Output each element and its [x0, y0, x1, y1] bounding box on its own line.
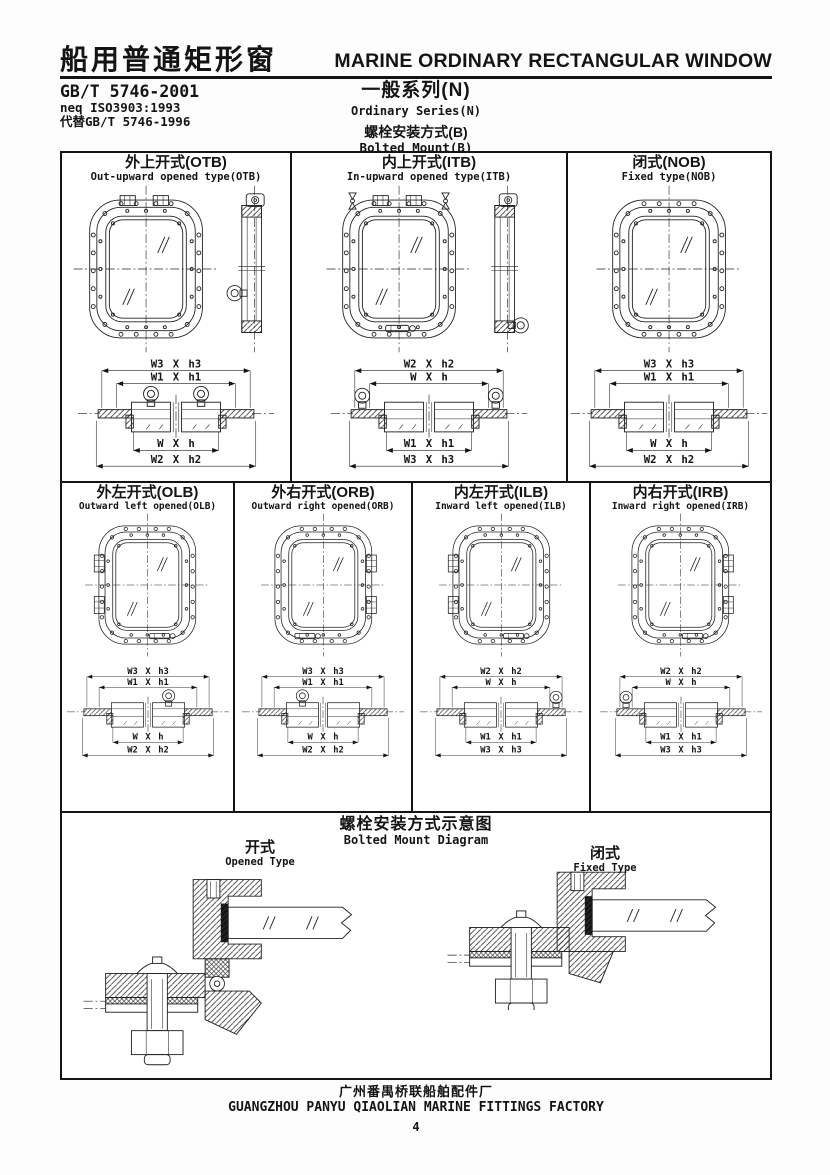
bolt-hole: [720, 233, 724, 237]
bolt-hole: [700, 640, 703, 643]
bolt-hole: [126, 325, 129, 328]
dimension-label: W X h: [665, 678, 696, 688]
window-section-drawing: W3 X h3W1 X h1W X hW2 X h2: [568, 354, 770, 479]
page-title-en: MARINE ORDINARY RECTANGULAR WINDOW: [334, 50, 772, 73]
front-view-svg: [593, 184, 745, 354]
bolt-hole: [508, 528, 511, 531]
front-view-svg: [258, 512, 389, 658]
bolt-hole: [614, 233, 618, 237]
bolt-hole: [154, 332, 158, 336]
dimension-label: W1 X h1: [480, 733, 522, 743]
bolt-hole: [417, 209, 420, 212]
dimension-label: W X h: [650, 437, 688, 450]
bolt-hole: [478, 640, 481, 643]
dimension-label: W2 X h2: [151, 452, 201, 465]
frame-wedge-section: [569, 951, 613, 982]
bolt-hole: [484, 634, 487, 637]
dimension-label: W X h: [157, 437, 195, 450]
bolt-hole: [657, 201, 661, 205]
panel-title-en: Fixed type(NOB): [568, 172, 770, 184]
bolt-hole: [545, 555, 548, 558]
page-title-zh: 船用普通矩形窗: [60, 38, 277, 78]
eye-bolt: [194, 386, 209, 406]
bolt-hole: [642, 332, 646, 336]
window-section-drawing: W2 X h2W X hW1 X h1W3 X h3: [327, 354, 531, 479]
bolt-hole: [191, 555, 194, 558]
bolt-hole: [197, 268, 201, 272]
bolt-hole: [417, 325, 420, 328]
bolt-hole: [663, 634, 666, 637]
bolt-hole: [124, 528, 127, 531]
bolt-hole: [450, 304, 454, 308]
panel-itb: 内上开式(ITB) In-upward opened type(ITB) W2 …: [292, 153, 568, 481]
bolt-hole: [718, 560, 721, 563]
bolt-hole: [99, 295, 102, 298]
front-view-svg: [70, 184, 281, 354]
bolt-hole: [508, 640, 511, 643]
bolt-hole: [345, 233, 349, 237]
bolt-hole: [454, 555, 457, 558]
bolt-hole: [276, 570, 279, 573]
bolt-hole: [276, 616, 279, 619]
panel-title-en: Outward left opened(OLB): [62, 502, 233, 513]
bolt-hole: [700, 528, 703, 531]
opened-label-zh: 开式: [185, 840, 335, 857]
bolt-hole: [454, 585, 457, 588]
bolt-hole: [283, 560, 286, 563]
section-view-svg: W3 X h3W1 X h1W X hW2 X h2: [74, 354, 278, 479]
panel-title-zh: 外上开式(OTB): [62, 155, 290, 172]
bolt-hole: [92, 233, 96, 237]
panel-ilb: 内左开式(ILB) Inward left opened(ILB) W2 X h…: [413, 483, 591, 813]
eye-bolt: [550, 692, 562, 708]
bolt-hole: [687, 528, 690, 531]
bolt-hole: [649, 325, 652, 328]
drawing-table: 外上开式(OTB) Out-upward opened type(OTB) W3…: [60, 151, 772, 1080]
panel-title-zh: 内右开式(IRB): [591, 485, 770, 502]
panel-olb: 外左开式(OLB) Outward left opened(OLB) W3 X …: [62, 483, 235, 813]
bolt-hole: [614, 268, 618, 272]
bolt-hole: [388, 332, 392, 336]
bolt-hole: [137, 528, 140, 531]
bolt-hole: [724, 585, 727, 588]
bolt-hole: [197, 250, 201, 254]
dimension-label: W3 X h3: [302, 667, 344, 677]
bolt-hole: [450, 233, 454, 237]
bolt-hole: [100, 555, 103, 558]
panel-nob: 闭式(NOB) Fixed type(NOB) W3 X h3W1 X h1W …: [568, 153, 770, 481]
dimension-label: W2 X h2: [302, 746, 344, 756]
bolt-hole: [545, 570, 548, 573]
bolt-hole: [100, 616, 103, 619]
dimension-label: W1 X h1: [302, 678, 344, 688]
window-front-drawing: [615, 512, 746, 658]
bolt-hole: [539, 608, 542, 611]
bolt-hole: [379, 209, 382, 212]
mount-label-zh: 螺栓安装方式(B): [60, 125, 772, 140]
bolt-hole: [191, 570, 194, 573]
section-view-svg: W3 X h3W1 X h1W X hW2 X h2: [239, 663, 407, 766]
panel-title-en: Outward right opened(ORB): [235, 502, 411, 513]
bolt-hole: [99, 239, 102, 242]
window-section-drawing: W2 X h2W X hW1 X h1W3 X h3: [417, 658, 585, 766]
dimension-label: W3 X h3: [151, 357, 201, 370]
bolt-hole: [633, 555, 636, 558]
bolt-hole: [306, 534, 309, 537]
window-front-drawing: [323, 184, 534, 354]
bolt-hole: [119, 332, 123, 336]
bolt-hole: [162, 534, 165, 537]
bolt-hole: [516, 634, 519, 637]
bolt-hole: [692, 201, 696, 205]
bolt-hole: [686, 325, 689, 328]
bolt-hole: [491, 640, 494, 643]
bolt-hole: [444, 239, 447, 242]
bolt-hole: [724, 555, 727, 558]
opened-mount-drawing: [78, 863, 382, 1080]
dimension-label: W2 X h2: [127, 746, 169, 756]
bolt-hole: [130, 634, 133, 637]
bolt-hole: [164, 325, 167, 328]
bolt-hole: [633, 585, 636, 588]
dimension-label: W X h: [308, 733, 339, 743]
bolt-hole: [330, 528, 333, 531]
bolt-hole: [450, 250, 454, 254]
dimension-label: W1 X h1: [404, 437, 454, 450]
bolt-hole: [137, 640, 140, 643]
panel-title-en: Inward right opened(IRB): [591, 502, 770, 513]
window-section-drawing: W3 X h3W1 X h1W X hW2 X h2: [64, 658, 232, 766]
bolt-hole: [677, 201, 681, 205]
bolt-hole: [345, 304, 349, 308]
bolt-hole: [338, 534, 341, 537]
bolt-hole: [423, 201, 427, 205]
panel-orb: 外右开式(ORB) Outward right opened(ORB) W3 X…: [235, 483, 413, 813]
eye-bolt: [162, 690, 174, 706]
bolt-hole: [692, 332, 696, 336]
bolt-hole: [633, 570, 636, 573]
factory-name-en: GUANGZHOU PANYU QIAOLIAN MARINE FITTINGS…: [60, 1100, 772, 1116]
bolt-hole: [677, 332, 681, 336]
bolt-hole: [345, 250, 349, 254]
bolt-hole: [367, 570, 370, 573]
dimension-label: W3 X h3: [660, 746, 702, 756]
bolt-hole: [164, 209, 167, 212]
bolt-hole: [352, 239, 355, 242]
bolt-hole: [300, 640, 303, 643]
panel-title-zh: 内上开式(ITB): [292, 155, 566, 172]
eye-bolt: [355, 388, 370, 408]
bolt-hole: [545, 601, 548, 604]
bolt-hole: [372, 332, 376, 336]
bolt-hole: [107, 608, 110, 611]
mount-diagram-section: 螺栓安装方式示意图 Bolted Mount Diagram 开式 Opened…: [62, 811, 770, 1080]
bolt-hole: [92, 268, 96, 272]
bolt-hole: [345, 268, 349, 272]
series-block: 一般系列(N) Ordinary Series(N) 螺栓安装方式(B) Bol…: [60, 81, 772, 155]
dimension-label: W1 X h1: [660, 733, 702, 743]
bolt-hole: [720, 268, 724, 272]
panel-title-en: In-upward opened type(ITB): [292, 172, 566, 184]
bolt-hole: [107, 560, 110, 563]
bolt-hole: [545, 585, 548, 588]
bolt-hole: [614, 304, 618, 308]
bolt-hole: [454, 570, 457, 573]
dimension-label: W X h: [410, 370, 448, 383]
series-label-zh: 一般系列(N): [60, 81, 772, 102]
bolt-hole: [124, 640, 127, 643]
panel-title-en: Inward left opened(ILB): [413, 502, 589, 513]
bolt-hole: [345, 286, 349, 290]
window-section-drawing: W3 X h3W1 X h1W X hW2 X h2: [239, 658, 407, 766]
bolt-hole: [361, 560, 364, 563]
eye-bolt: [488, 388, 503, 408]
bolt-hole: [343, 528, 346, 531]
bolt-hole: [197, 304, 201, 308]
bolt-hole: [461, 560, 464, 563]
bolt-hole: [640, 608, 643, 611]
bolt-hole: [130, 534, 133, 537]
dimension-label: W3 X h3: [127, 667, 169, 677]
table-row: 外上开式(OTB) Out-upward opened type(OTB) W3…: [62, 153, 770, 481]
bolt-hole: [484, 534, 487, 537]
dimension-label: W2 X h2: [404, 357, 454, 370]
fixed-mount-drawing: [442, 863, 746, 1015]
dimension-label: W X h: [486, 678, 517, 688]
bolt-hole: [686, 209, 689, 212]
bolt-hole: [92, 250, 96, 254]
window-front-drawing: [258, 512, 389, 658]
bolt-hole: [306, 634, 309, 637]
bolt-hole: [695, 634, 698, 637]
front-view-svg: [82, 512, 213, 658]
bolt-hole: [663, 534, 666, 537]
bolt-hole: [367, 616, 370, 619]
bolt-hole: [649, 209, 652, 212]
bolt-hole: [313, 640, 316, 643]
side-section-view: [492, 185, 529, 351]
bolt-hole: [640, 560, 643, 563]
window-front-drawing: [593, 184, 745, 354]
bolt-hole: [154, 640, 157, 643]
section-view-svg: W2 X h2W X hW1 X h1W3 X h3: [327, 354, 531, 479]
bolt-hole: [614, 286, 618, 290]
bolt-hole: [185, 560, 188, 563]
bolt-hole: [283, 608, 286, 611]
panel-irb: 内右开式(IRB) Inward right opened(IRB) W2 X …: [591, 483, 770, 813]
bolt-hole: [100, 570, 103, 573]
bolt-hole: [687, 640, 690, 643]
bolt-hole: [352, 295, 355, 298]
dimension-label: W1 X h1: [151, 370, 201, 383]
bolt-hole: [450, 286, 454, 290]
dimension-label: W3 X h3: [404, 452, 454, 465]
bolt-hole: [521, 528, 524, 531]
bolt-hole: [622, 239, 625, 242]
bolt-hole: [713, 295, 716, 298]
bolt-hole: [491, 528, 494, 531]
glass-pane: [592, 900, 715, 931]
bolt-hole: [633, 601, 636, 604]
bolt-hole: [126, 209, 129, 212]
window-front-drawing: [70, 184, 281, 354]
hinge-arm-section: [205, 991, 261, 1034]
bolt-hole: [343, 640, 346, 643]
bolt-hole: [191, 585, 194, 588]
bolt-hole: [614, 250, 618, 254]
page-number: 4: [60, 1120, 772, 1134]
bolt-hole: [197, 286, 201, 290]
dimension-label: W2 X h2: [644, 452, 694, 465]
bolt-hole: [191, 601, 194, 604]
bolt-hole: [478, 528, 481, 531]
bolt-hole: [695, 534, 698, 537]
eye-bolt: [619, 692, 631, 708]
bolt-hole: [720, 250, 724, 254]
section-view-svg: W2 X h2W X hW1 X h1W3 X h3: [597, 663, 765, 766]
bolt-hole: [657, 332, 661, 336]
dimension-label: W X h: [132, 733, 163, 743]
bolt-hole: [338, 634, 341, 637]
bolt-hole: [720, 286, 724, 290]
bolt-hole: [642, 201, 646, 205]
bolt-hole: [539, 560, 542, 563]
bolt-hole: [718, 608, 721, 611]
dimension-label: W2 X h2: [660, 667, 702, 677]
bolt-hole: [162, 634, 165, 637]
bolt-hole: [170, 201, 174, 205]
bolt-hole: [450, 268, 454, 272]
bolt-hole: [361, 608, 364, 611]
factory-name-zh: 广州番禺桥联船舶配件厂: [60, 1084, 772, 1100]
section-view-svg: W3 X h3W1 X h1W X hW2 X h2: [568, 354, 770, 479]
dimension-label: W3 X h3: [480, 746, 522, 756]
fixed-mount-svg: [442, 863, 746, 1010]
glass-pane: [228, 907, 351, 938]
bolt-hole: [657, 640, 660, 643]
bolt-hole: [197, 233, 201, 237]
panel-title-zh: 外左开式(OLB): [62, 485, 233, 502]
bolt-hole: [191, 239, 194, 242]
dimension-label: W1 X h1: [127, 678, 169, 688]
table-row: 外左开式(OLB) Outward left opened(OLB) W3 X …: [62, 481, 770, 813]
eye-bolt: [296, 690, 308, 706]
window-front-drawing: [82, 512, 213, 658]
front-view-svg: [323, 184, 534, 354]
bolt-hole: [670, 640, 673, 643]
title-underline: [60, 76, 772, 79]
bolt-hole: [167, 640, 170, 643]
bolt-hole: [191, 295, 194, 298]
bolt-hole: [330, 640, 333, 643]
bolt-hole: [724, 616, 727, 619]
bolt-hole: [545, 616, 548, 619]
document-page: { "page": { "title_zh": "船用普通矩形窗", "titl…: [0, 0, 830, 1175]
page-footer: 广州番禺桥联船舶配件厂 GUANGZHOU PANYU QIAOLIAN MAR…: [60, 1084, 772, 1135]
opened-mount-svg: [78, 863, 382, 1075]
series-label-en: Ordinary Series(N): [60, 105, 772, 118]
bolt-hole: [135, 332, 139, 336]
bolt-hole: [657, 528, 660, 531]
bolt-hole: [100, 585, 103, 588]
bolt-hole: [444, 295, 447, 298]
bolt-hole: [170, 332, 174, 336]
panel-otb: 外上开式(OTB) Out-upward opened type(OTB) W3…: [62, 153, 292, 481]
dimension-label: W3 X h3: [644, 357, 694, 370]
bolt-hole: [724, 570, 727, 573]
bolt-hole: [367, 585, 370, 588]
bolt-hole: [670, 528, 673, 531]
diagram-title-zh: 螺栓安装方式示意图: [62, 816, 770, 834]
panel-title-zh: 内左开式(ILB): [413, 485, 589, 502]
panel-title-en: Out-upward opened type(OTB): [62, 172, 290, 184]
bolt-hole: [185, 608, 188, 611]
bolt-hole: [276, 601, 279, 604]
bolt-hole: [454, 616, 457, 619]
bolt-hole: [407, 332, 411, 336]
bolt-hole: [167, 528, 170, 531]
bolt-hole: [191, 616, 194, 619]
bolt-hole: [300, 528, 303, 531]
bolt-hole: [633, 616, 636, 619]
bolt-hole: [367, 555, 370, 558]
front-view-svg: [615, 512, 746, 658]
bolt-hole: [516, 534, 519, 537]
dimension-label: W2 X h2: [480, 667, 522, 677]
bolt-hole: [521, 640, 524, 643]
bolt-hole: [154, 528, 157, 531]
bolt-hole: [423, 332, 427, 336]
bolt-hole: [379, 325, 382, 328]
section-view-svg: W3 X h3W1 X h1W X hW2 X h2: [64, 663, 232, 766]
bolt-hole: [713, 239, 716, 242]
panel-title-zh: 闭式(NOB): [568, 155, 770, 172]
bolt-hole: [720, 304, 724, 308]
bolt-hole: [92, 286, 96, 290]
window-section-drawing: W3 X h3W1 X h1W X hW2 X h2: [74, 354, 278, 479]
panel-title-zh: 外右开式(ORB): [235, 485, 411, 502]
bolt-hole: [92, 304, 96, 308]
bolt-hole: [622, 295, 625, 298]
eye-bolt: [144, 386, 159, 406]
window-section-drawing: W2 X h2W X hW1 X h1W3 X h3: [597, 658, 765, 766]
bolt-hole: [461, 608, 464, 611]
dimension-label: W1 X h1: [644, 370, 694, 383]
section-view-svg: W2 X h2W X hW1 X h1W3 X h3: [417, 663, 585, 766]
front-view-svg: [436, 512, 567, 658]
bolt-hole: [313, 528, 316, 531]
bolt-hole: [276, 555, 279, 558]
bolt-hole: [276, 585, 279, 588]
side-section-view: [227, 185, 265, 351]
fixed-label-zh: 闭式: [530, 846, 680, 863]
window-front-drawing: [436, 512, 567, 658]
